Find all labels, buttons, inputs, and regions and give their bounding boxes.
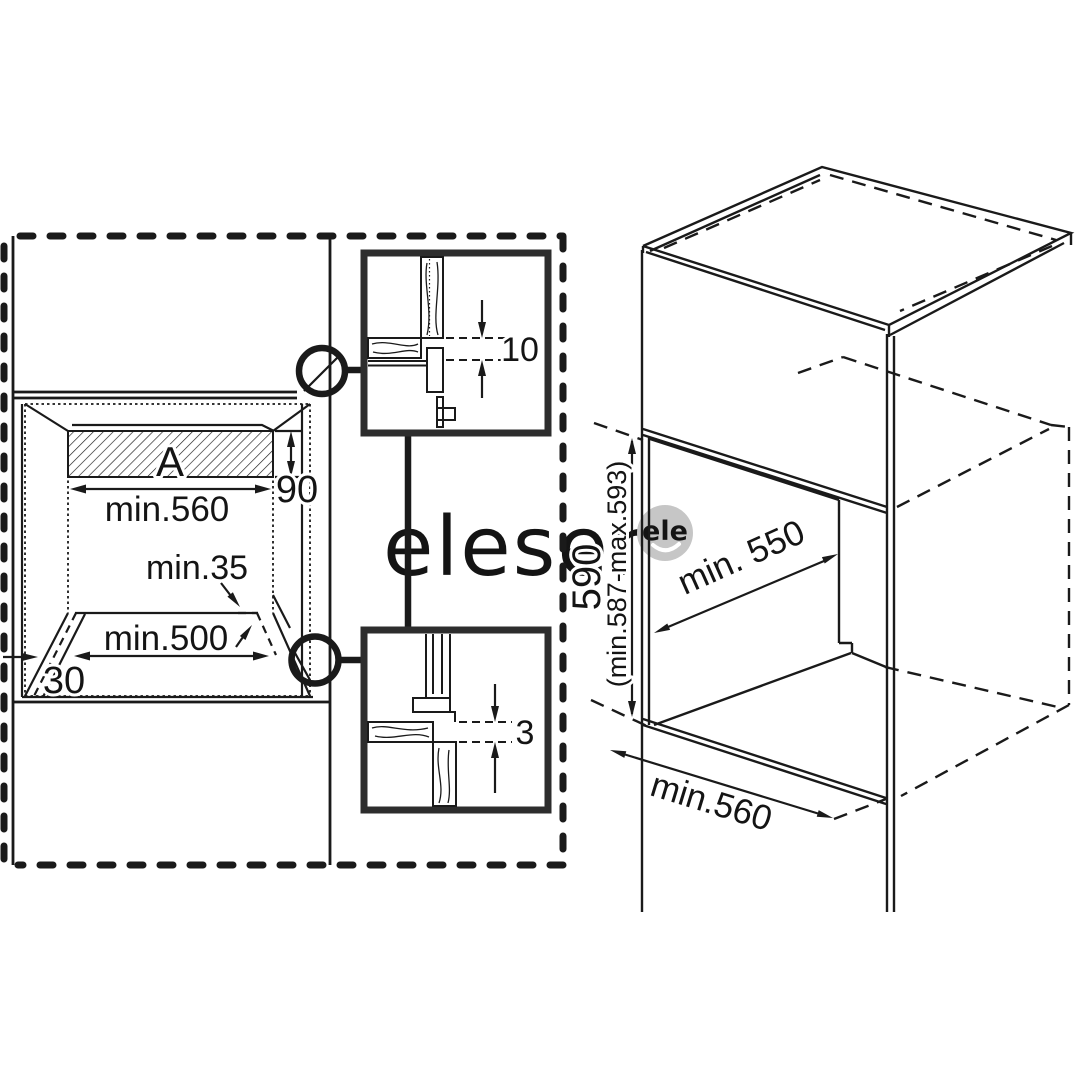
- detail-marker-stubs: [340, 370, 364, 660]
- bottom-width-label: min.500: [104, 619, 229, 658]
- side-clearance-label: 30: [43, 660, 85, 702]
- rear-clearance-label: min.35: [146, 549, 248, 587]
- detail-top-box: 10: [364, 253, 548, 433]
- detail-marker-top-ring: [299, 348, 345, 394]
- detail-bottom-box: 3: [364, 630, 548, 810]
- vent-height-label: 90: [276, 469, 318, 511]
- detail-bottom-gap-label: 3: [516, 714, 535, 752]
- installation-diagram-page: eleser ele A min.560 90 min.35 min.5: [0, 0, 1080, 1080]
- top-width-label: min.560: [105, 490, 230, 529]
- niche-width-label: min.560: [646, 765, 776, 839]
- isometric-view: 590 (min.587-max.593) min. 550 min.560: [565, 167, 1071, 912]
- niche-height-range-label: (min.587-max.593): [602, 461, 632, 688]
- iso-dimension-lines: [625, 441, 824, 814]
- niche-depth-label: min. 550: [672, 512, 811, 602]
- watermark: eleser ele: [383, 500, 693, 595]
- detail-top-gap-label: 10: [501, 331, 539, 369]
- area-label: A: [156, 438, 184, 485]
- installation-diagram: eleser ele A min.560 90 min.35 min.5: [0, 0, 1080, 1080]
